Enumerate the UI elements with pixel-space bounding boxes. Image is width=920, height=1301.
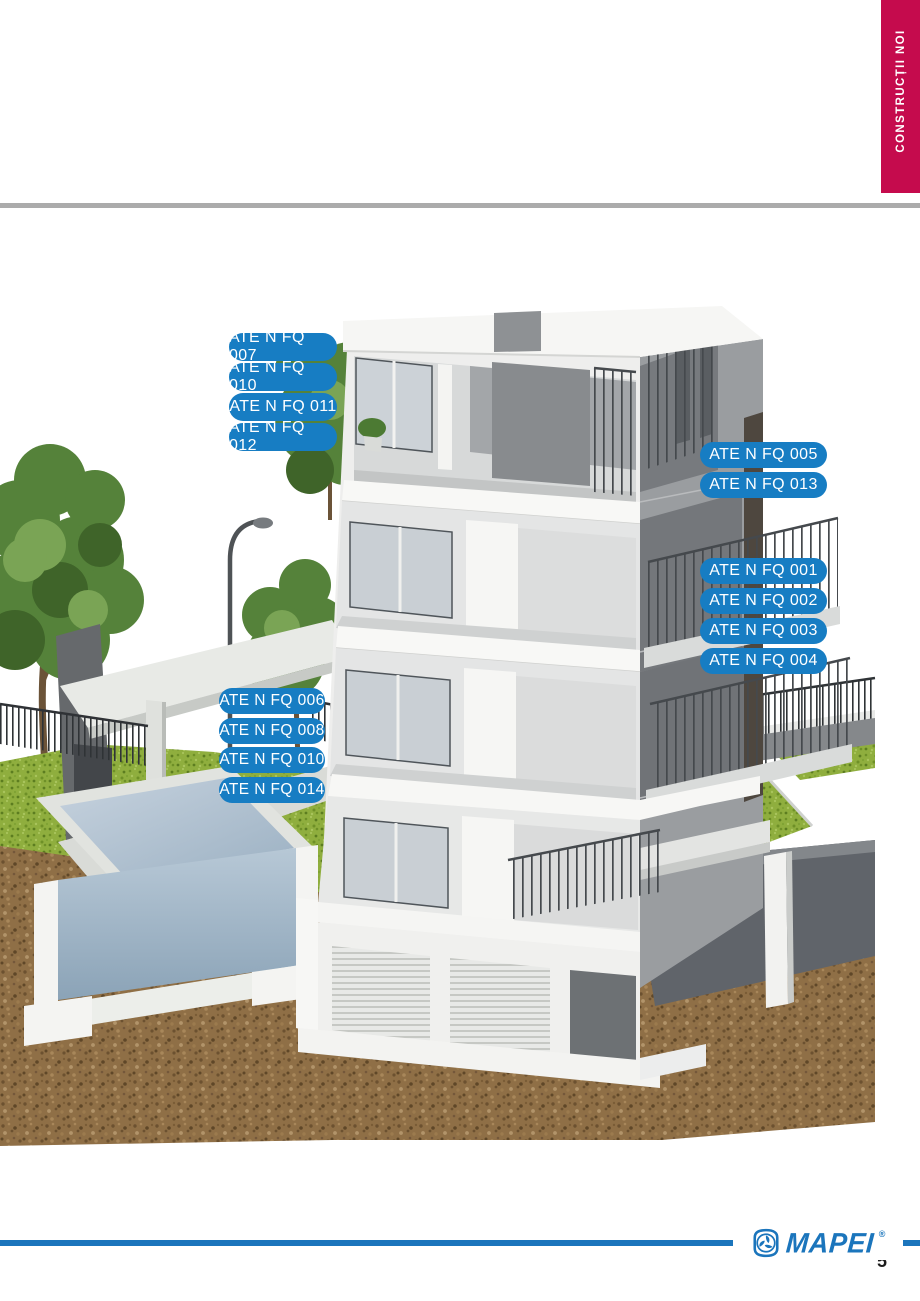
mapei-logo-icon — [751, 1228, 781, 1258]
product-label-pill: ATE N FQ 010 — [229, 363, 337, 391]
label-group-right-lower: ATE N FQ 001ATE N FQ 002ATE N FQ 003ATE … — [700, 558, 827, 678]
product-label-pill: ATE N FQ 001 — [700, 558, 827, 584]
product-label-pill: ATE N FQ 014 — [219, 777, 325, 803]
product-label-pill: ATE N FQ 008 — [219, 718, 325, 744]
mapei-wordmark: MAPEI — [785, 1229, 875, 1257]
product-label-pill: ATE N FQ 004 — [700, 648, 827, 674]
product-label-pill: ATE N FQ 002 — [700, 588, 827, 614]
product-label-pill: ATE N FQ 011 — [229, 393, 337, 421]
product-label-pill: ATE N FQ 003 — [700, 618, 827, 644]
product-label-pill: ATE N FQ 007 — [229, 333, 337, 361]
mapei-logo: MAPEI ® — [733, 1226, 903, 1260]
product-label-pill: ATE N FQ 006 — [219, 688, 325, 714]
product-label-pill: ATE N FQ 013 — [700, 472, 827, 498]
label-group-top-left: ATE N FQ 007ATE N FQ 010ATE N FQ 011ATE … — [229, 333, 337, 453]
label-group-right-upper: ATE N FQ 005ATE N FQ 013 — [700, 442, 827, 502]
label-group-left-middle: ATE N FQ 006ATE N FQ 008ATE N FQ 010ATE … — [219, 688, 325, 806]
registered-mark: ® — [879, 1229, 886, 1239]
product-label-pill: ATE N FQ 005 — [700, 442, 827, 468]
product-label-pill: ATE N FQ 012 — [229, 423, 337, 451]
catalog-page: CONSTRUCȚII NOI — [0, 0, 920, 1301]
product-label-pill: ATE N FQ 010 — [219, 747, 325, 773]
